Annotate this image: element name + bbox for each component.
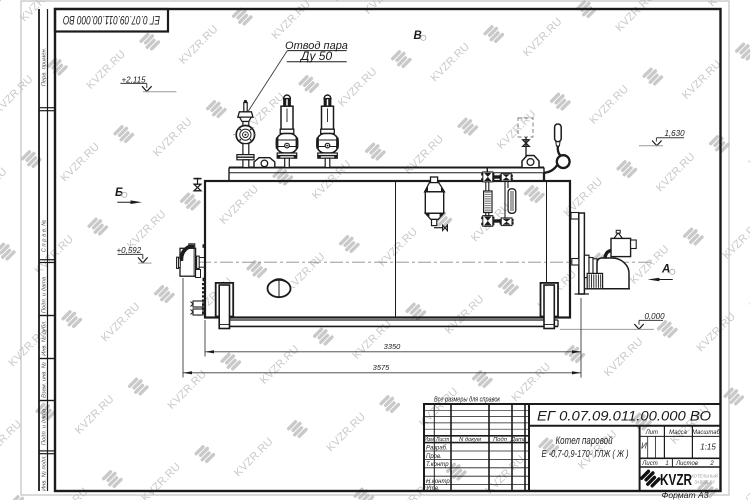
svg-text:Е -0,7-0,9-170- ГЛЖ ( Ж ): Е -0,7-0,9-170- ГЛЖ ( Ж ) [542, 448, 629, 460]
svg-text:Лит: Лит [645, 430, 658, 436]
svg-text:ЕГ 0.07.09.011.00.000 ВО: ЕГ 0.07.09.011.00.000 ВО [537, 407, 711, 423]
svg-text:Формат А3: Формат А3 [662, 490, 709, 500]
svg-text:1: 1 [665, 461, 668, 467]
svg-text:3575: 3575 [373, 363, 391, 372]
svg-text:Котел паровой: Котел паровой [556, 435, 613, 447]
svg-text:Лист: Лист [641, 461, 657, 467]
svg-text:Перв. примен.: Перв. примен. [42, 48, 48, 87]
svg-text:Все размеры для справок: Все размеры для справок [434, 395, 500, 404]
svg-text:И: И [641, 442, 647, 451]
svg-text:Лист: Лист [435, 437, 450, 443]
svg-text:ЗАВОД.РУ: ЗАВОД.РУ [694, 480, 716, 485]
svg-text:Подп: Подп [493, 437, 508, 443]
svg-text:Инв. № дубл.: Инв. № дубл. [42, 320, 48, 356]
svg-text:0,000: 0,000 [645, 312, 666, 321]
svg-text:КОТЕЛЬНЫЙ: КОТЕЛЬНЫЙ [691, 474, 717, 479]
svg-text:1,630: 1,630 [665, 129, 686, 138]
svg-text:Пров.: Пров. [426, 454, 442, 460]
svg-text:1:15: 1:15 [700, 443, 716, 452]
svg-text:Подп. и дата: Подп. и дата [42, 408, 48, 445]
svg-text:KVZR: KVZR [660, 472, 692, 489]
svg-text:2: 2 [709, 461, 714, 467]
svg-text:Взам. инв. №: Взам. инв. № [42, 362, 48, 398]
svg-text:Инв. № подл.: Инв. № подл. [42, 455, 48, 491]
svg-text:Масштаб: Масштаб [692, 430, 721, 436]
svg-text:Т.контр: Т.контр [426, 462, 449, 468]
svg-text:Ду 50: Ду 50 [299, 49, 333, 63]
svg-text:Н.контр: Н.контр [426, 479, 450, 485]
svg-text:ЕГ 0.07.09.011.00.000 ВО: ЕГ 0.07.09.011.00.000 ВО [63, 13, 160, 25]
svg-text:В: В [414, 30, 422, 42]
svg-text:Листов: Листов [675, 461, 698, 467]
svg-text:Дата: Дата [510, 437, 527, 443]
svg-text:Изм: Изм [424, 437, 434, 443]
svg-text:Масса: Масса [669, 430, 687, 436]
svg-text:N докум: N докум [459, 437, 481, 443]
svg-text:Утв.: Утв. [425, 486, 440, 492]
svg-text:Подп. и дата: Подп. и дата [42, 276, 48, 313]
svg-text:3350: 3350 [384, 342, 402, 351]
svg-text:А: А [661, 264, 670, 276]
svg-text:С п р а в. №: С п р а в. № [42, 220, 48, 253]
svg-text:+0,592: +0,592 [117, 246, 142, 255]
svg-text:Разраб.: Разраб. [426, 446, 448, 452]
